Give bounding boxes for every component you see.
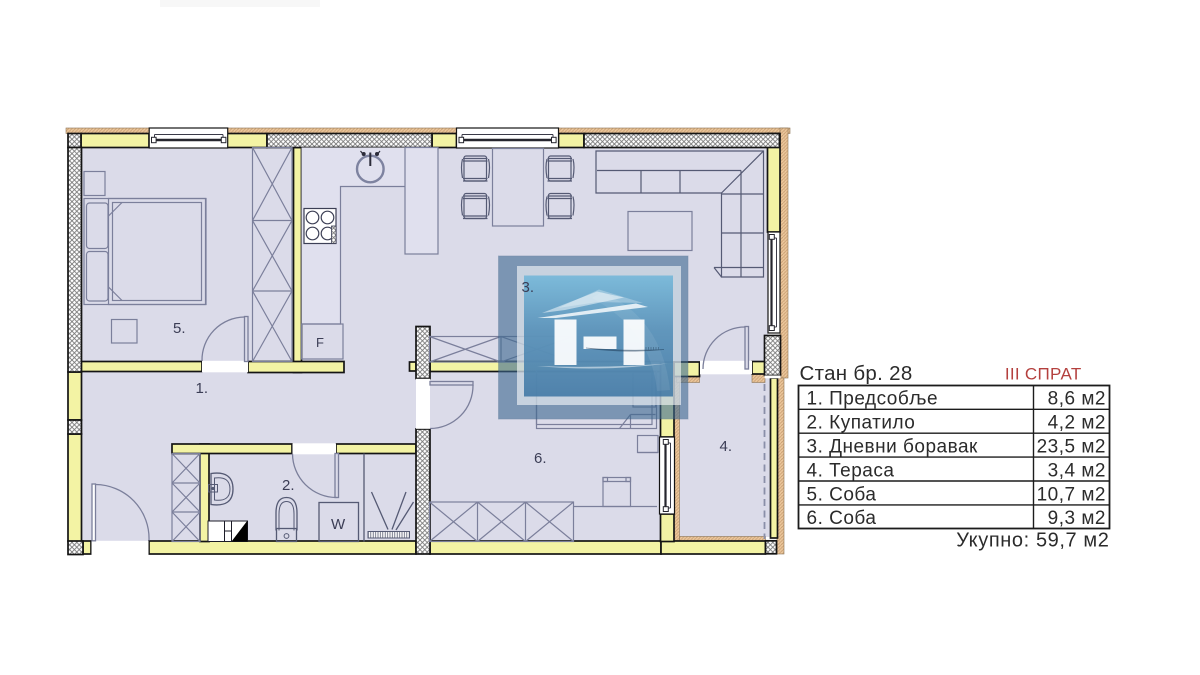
svg-text:4. Тераса: 4. Тераса	[807, 460, 895, 481]
svg-text:1.: 1.	[196, 380, 209, 397]
svg-text:6.: 6.	[534, 450, 547, 467]
svg-text:Укупно: 59,7 м2: Укупно: 59,7 м2	[956, 530, 1109, 552]
svg-text:Стан бр. 28: Стан бр. 28	[800, 362, 913, 385]
svg-text:10,7 м2: 10,7 м2	[1037, 484, 1106, 505]
svg-text:1. Предсобље: 1. Предсобље	[807, 389, 939, 410]
svg-text:5. Соба: 5. Соба	[807, 484, 877, 505]
svg-text:III СПРАТ: III СПРАТ	[1005, 365, 1082, 384]
svg-text:8,6 м2: 8,6 м2	[1048, 389, 1106, 410]
svg-text:3,4 м2: 3,4 м2	[1048, 460, 1106, 481]
svg-text:4.: 4.	[720, 438, 733, 455]
svg-text:3. Дневни боравак: 3. Дневни боравак	[807, 437, 979, 458]
svg-text:2.: 2.	[282, 477, 295, 494]
svg-text:9,3 м2: 9,3 м2	[1048, 508, 1106, 529]
svg-text:F: F	[316, 335, 324, 350]
svg-text:23,5 м2: 23,5 м2	[1037, 437, 1106, 458]
svg-text:6. Соба: 6. Соба	[807, 508, 877, 529]
svg-text:3.: 3.	[522, 279, 535, 296]
svg-text:4,2 м2: 4,2 м2	[1048, 413, 1106, 434]
svg-text:5.: 5.	[173, 320, 186, 337]
svg-text:2. Купатило: 2. Купатило	[807, 413, 916, 434]
svg-text:W: W	[331, 516, 346, 533]
